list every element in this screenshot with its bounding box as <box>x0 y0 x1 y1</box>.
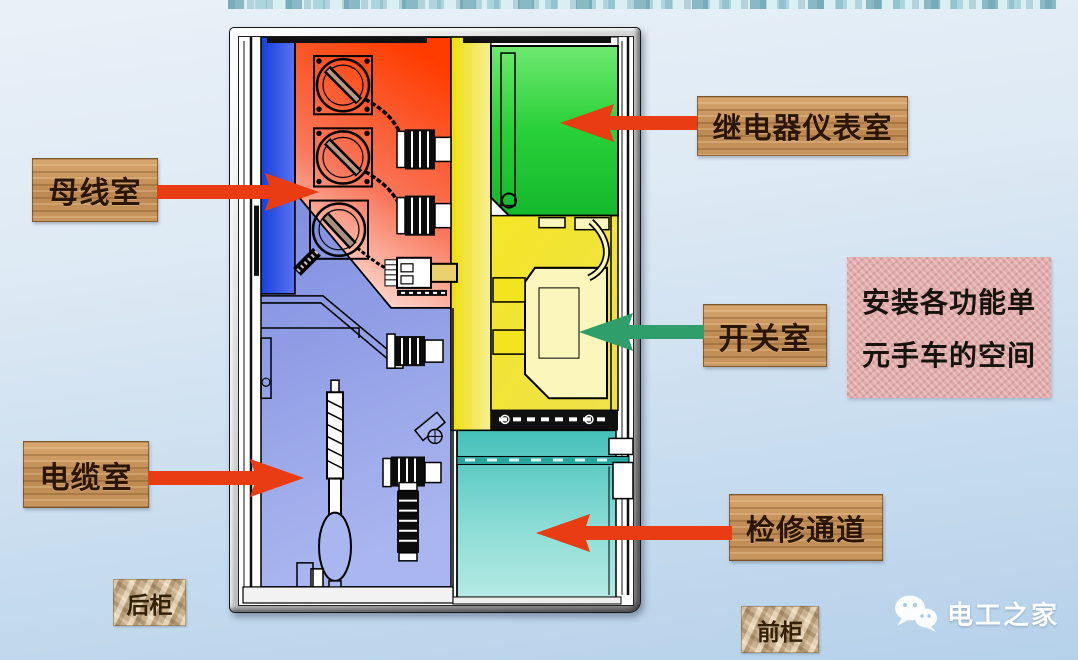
busbar-label-text: 母线室 <box>49 168 142 212</box>
cable-arrow <box>148 458 304 498</box>
busbar-arrow-shape <box>157 173 319 211</box>
front-cabinet-tag-text: 前柜 <box>757 613 803 647</box>
cable-label: 电缆室 <box>23 441 149 508</box>
busbar-label: 母线室 <box>32 158 158 222</box>
partition-strip <box>451 37 491 430</box>
note-line-1: 安装各功能单 <box>862 281 1036 321</box>
busbar-arrow <box>157 172 319 212</box>
relay-label: 继电器仪表室 <box>697 96 908 156</box>
note-line-2: 元手车的空间 <box>862 334 1036 374</box>
passage-label: 检修通道 <box>729 494 883 561</box>
switch-arrow <box>579 312 704 352</box>
rear-cabinet-tag-text: 后柜 <box>127 586 173 620</box>
cable-arrow-shape <box>148 459 304 497</box>
decorative-header-strip <box>228 0 1058 9</box>
front-cabinet-tag: 前柜 <box>741 606 819 653</box>
watermark: 电工之家 <box>893 590 1068 636</box>
relay-arrow-shape <box>560 104 697 142</box>
passage-label-text: 检修通道 <box>746 507 866 549</box>
passage-arrow <box>536 513 732 553</box>
switch-arrow-shape <box>579 313 704 351</box>
cabinet-base <box>243 587 453 603</box>
cable-label-text: 电缆室 <box>40 453 133 497</box>
switch-label: 开关室 <box>703 304 827 367</box>
switch-label-text: 开关室 <box>719 314 812 358</box>
passage-arrow-shape <box>536 514 732 552</box>
rear-cabinet-tag: 后柜 <box>113 579 186 626</box>
truck-space-note: 安装各功能单 元手车的空间 <box>847 257 1051 398</box>
relay-label-text: 继电器仪表室 <box>712 105 892 147</box>
busbar-side-panel <box>261 37 295 294</box>
relay-arrow <box>560 103 697 143</box>
watermark-brand: 电工之家 <box>947 595 1059 632</box>
wechat-icon <box>893 593 939 633</box>
